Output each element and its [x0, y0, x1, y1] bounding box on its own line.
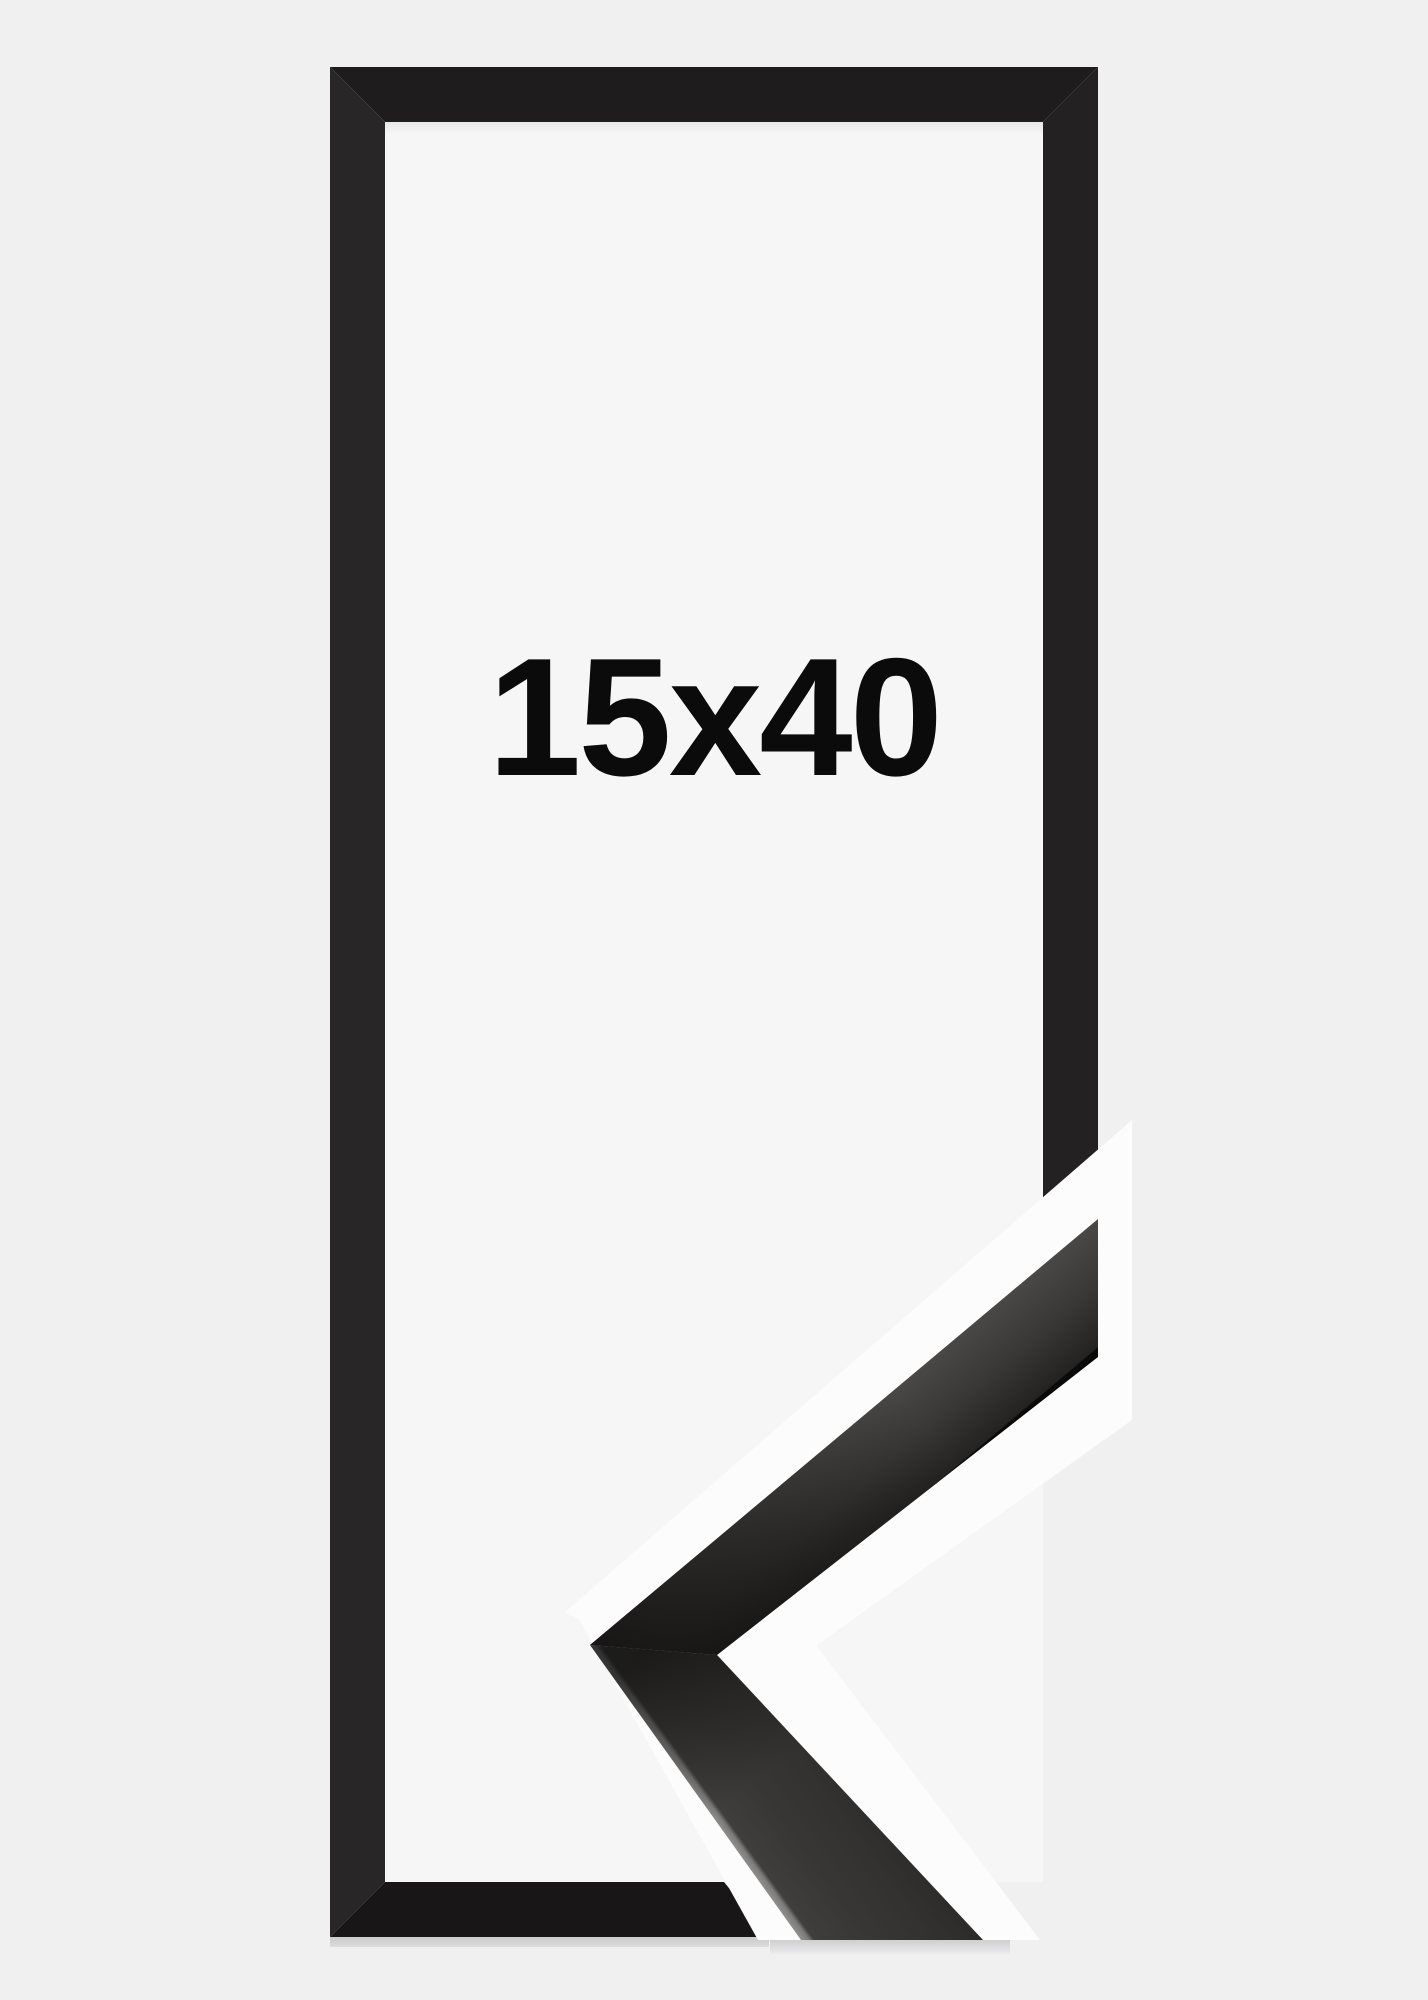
- product-image: 15x40: [0, 0, 1428, 2000]
- opening-inner-shadow: [385, 122, 1043, 134]
- frame-bottom-bar: [330, 1882, 769, 1937]
- frame-graphic: [0, 0, 1428, 2000]
- frame-right-bar: [1043, 67, 1098, 1199]
- frame-bottom-shadow: [330, 1937, 769, 1947]
- frame-top-bar: [330, 67, 1098, 122]
- sample-bottom-shadow: [770, 1940, 1010, 1954]
- frame-left-bar: [330, 67, 385, 1937]
- size-label: 15x40: [385, 633, 1043, 801]
